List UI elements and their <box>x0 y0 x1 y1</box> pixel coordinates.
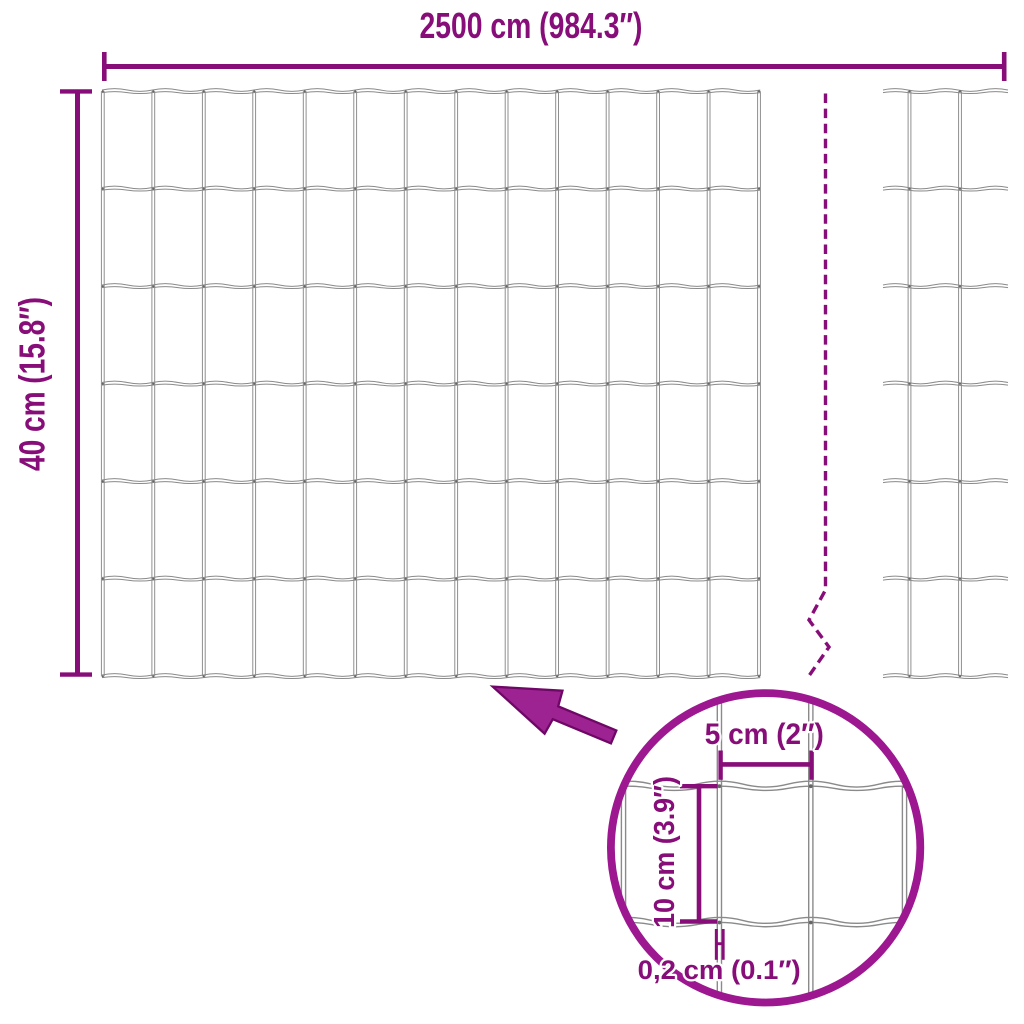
svg-text:0,2 cm (0.1″): 0,2 cm (0.1″) <box>638 955 801 985</box>
svg-text:5 cm (2″): 5 cm (2″) <box>705 718 824 751</box>
svg-text:2500 cm (984.3″): 2500 cm (984.3″) <box>420 5 643 46</box>
svg-text:10 cm (3.9″): 10 cm (3.9″) <box>649 776 681 928</box>
svg-text:40 cm (15.8″): 40 cm (15.8″) <box>12 297 53 471</box>
